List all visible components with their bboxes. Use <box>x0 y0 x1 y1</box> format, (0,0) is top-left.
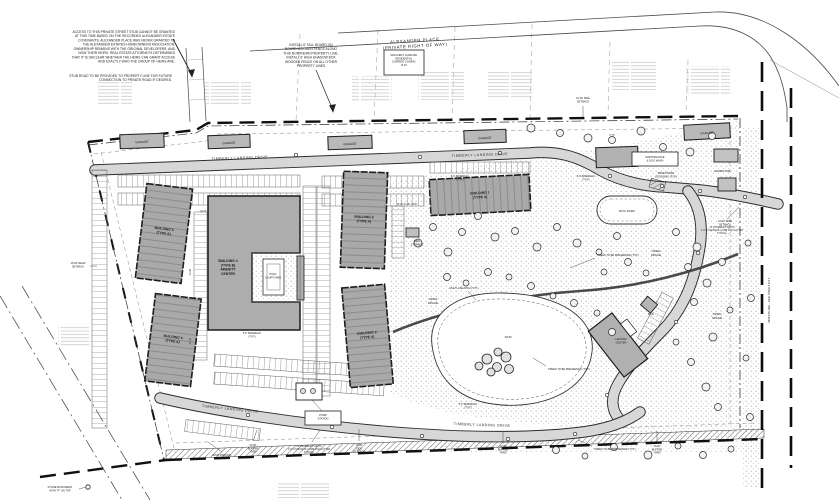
trees-preserved-label-3: TREES TO BE PRESERVED (TYP.) <box>594 447 636 451</box>
access-note: ACCESS TO THIS PRIVATE STREET STUB CANNO… <box>72 30 176 64</box>
monument-leader <box>79 487 86 489</box>
multi-use-path-label: MULTI-USE PATH (TYP.) <box>450 286 479 290</box>
open-space-label-1: OPENSPACE <box>428 297 438 305</box>
leasing-center-label: LEASINGCENTER <box>615 337 626 344</box>
scm-label: SCM <box>505 335 512 339</box>
maintenance-label: MAINTENANCE& DOG WASH <box>646 155 665 162</box>
street-stub <box>186 47 206 122</box>
stub-road-note: STUB ROAD TO BE PROVIDED TO PROPERTY LIN… <box>69 74 173 82</box>
dim-34: 34.33' <box>200 210 207 213</box>
building-1-label: BUILDING 1(TYPE A) <box>470 190 490 199</box>
building-3-label: BUILDING 3(TYPE A) <box>357 330 377 340</box>
open-space-label-3: OPENSPACE <box>712 312 722 320</box>
mail-label: MAIL <box>648 312 655 316</box>
stone-monument <box>86 485 90 489</box>
bike-storage-pad <box>406 228 419 237</box>
street-alexander-place: ALEXANDER PLACE(PRIVATE RIGHT OF WAY) <box>382 36 447 50</box>
site-plan-drawing: ACCESS TO THIS PRIVATE STREET STUB CANNO… <box>0 0 839 500</box>
dim-row: 15.00' 24.00' 18.00' <box>397 203 418 206</box>
garage-3-label: GARAGE <box>343 142 356 146</box>
existing-road-lines <box>0 286 150 500</box>
fence-note: INSTALL 6' TALL BOARD ONBOARD WOODEN FEN… <box>283 43 338 68</box>
scm-pond <box>432 293 593 405</box>
dim-41: 41.33' <box>189 337 192 344</box>
trees-preserved-label-1: TREES TO BE PRESERVED (TYP.) <box>597 253 639 257</box>
matchline-label: MATCHLINE - SEE SHEET C3.1 <box>767 277 771 322</box>
open-space-label-2: OPENSPACE <box>651 249 661 257</box>
building-4-label: BUILDING 4(TYPE B)AMENITYCENTER <box>218 259 237 276</box>
dim-44: 44.00' <box>189 268 192 275</box>
pedestrian-crossing-label: PEDESTRIANCROSSING (TYP.) <box>655 171 677 178</box>
trees-preserved-label-2: TREES TO BE PRESERVED (TYP.) <box>548 367 590 371</box>
street-timberly-bottom-2: TIMBERLY LANDING DRIVE <box>454 422 511 428</box>
garage-2-label: GARAGE <box>222 141 235 145</box>
garage-5-label: GARAGE <box>700 131 713 136</box>
rear-setback-label: 15.00' REARSETBACK <box>71 261 86 268</box>
sidewalk-label-2: 5.0' SIDEWALK(TYP.) <box>243 331 261 338</box>
side-setback-label-top: 10.00' SIDESETBACK <box>576 96 590 103</box>
stone-monument-label: STONE MONUMENTWITH "P" ON TOP <box>48 485 73 492</box>
site-plan-sheet: ACCESS TO THIS PRIVATE STREET STUB CANNO… <box>0 0 839 500</box>
building-2-label: BUILDING 2(TYPE A) <box>354 215 374 224</box>
garage-1-label: GARAGE <box>135 140 148 144</box>
alexander-place-row-lines <box>250 12 839 122</box>
dim-77: 77.67' <box>609 134 616 137</box>
pump-station <box>296 383 322 400</box>
garage-4-label: GARAGE <box>478 136 491 140</box>
dog-park-label: DOG PARK <box>619 209 636 213</box>
compactor-label: COMPACTOR <box>714 169 731 173</box>
